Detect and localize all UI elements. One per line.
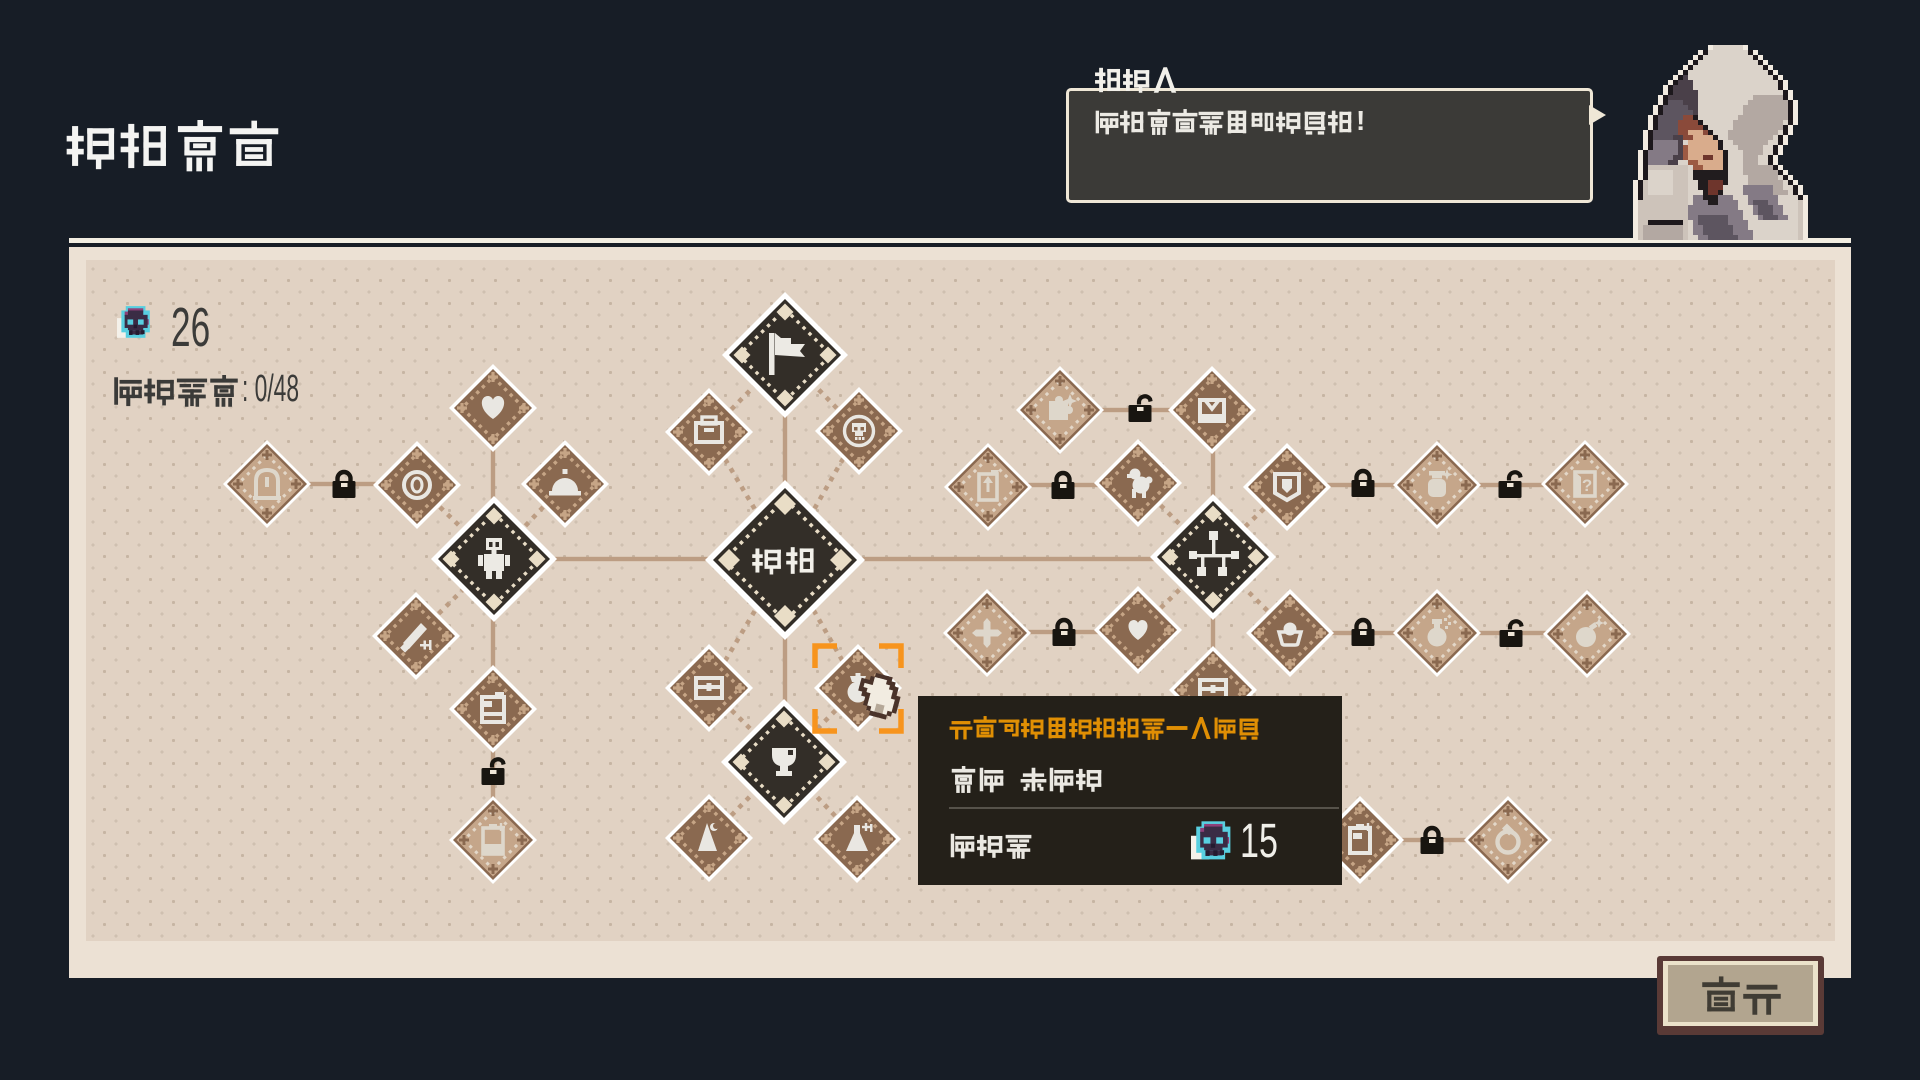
svg-text:?: ? bbox=[1582, 476, 1592, 495]
